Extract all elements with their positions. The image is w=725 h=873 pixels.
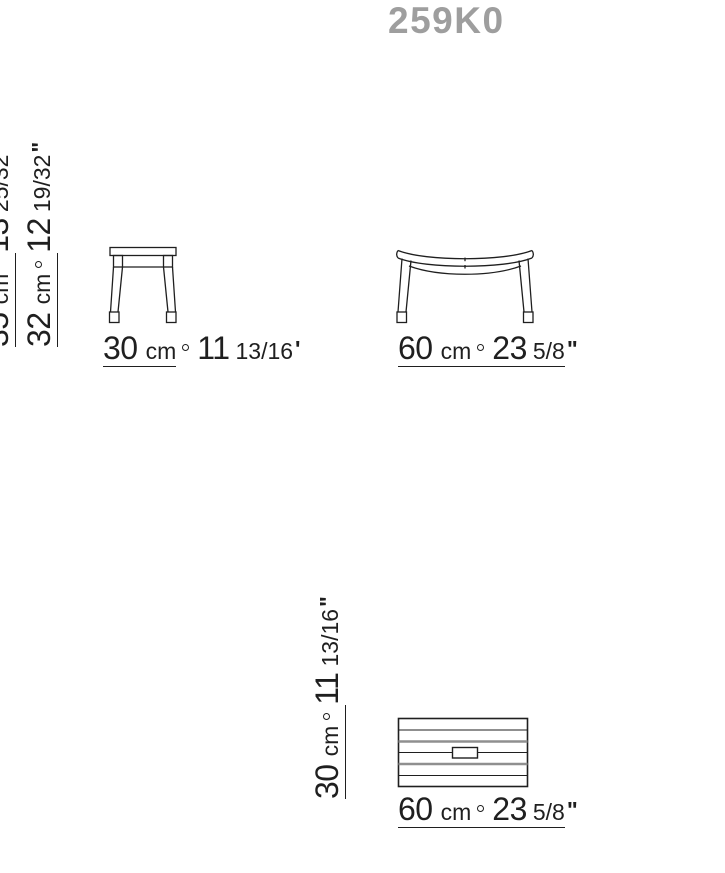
top-width-dimension-label: 60cm235/8"	[398, 791, 578, 834]
inch-value: 13	[0, 218, 15, 253]
leg-block-left	[114, 256, 123, 268]
degree-separator-icon	[35, 261, 42, 268]
degree-separator-icon	[477, 344, 484, 351]
cm-value: 30	[309, 764, 345, 799]
total-height-dimension-label: 35cm1325/32"	[0, 142, 22, 347]
inch-mark: "	[567, 336, 578, 362]
inch-mark: '	[295, 336, 300, 362]
inch-value: 12	[21, 218, 57, 253]
stool-side-view-drawing	[106, 244, 180, 324]
cm-unit: cm	[441, 799, 472, 825]
inch-mark: "	[0, 142, 11, 153]
cm-unit: cm	[441, 338, 472, 364]
degree-separator-icon	[477, 805, 484, 812]
inch-fraction: 25/32	[0, 155, 13, 213]
inch-mark: "	[27, 142, 53, 153]
leg-right	[164, 267, 176, 312]
degree-separator-icon	[323, 713, 330, 720]
inch-fraction: 13/16	[235, 338, 293, 364]
cm-value: 30	[103, 330, 138, 366]
inch-value: 11	[197, 330, 229, 366]
leg-left	[111, 267, 123, 312]
degree-separator-icon	[182, 344, 189, 351]
inch-value: 23	[492, 791, 527, 827]
handle	[453, 748, 478, 759]
seat-end-right	[532, 251, 533, 259]
cm-unit: cm	[317, 726, 343, 757]
product-code-title: 259K0	[388, 2, 505, 40]
side-width-dimension-label: 30cm1113/16'	[103, 330, 301, 373]
seat-top-edge	[398, 251, 532, 259]
inch-value: 11	[309, 673, 345, 705]
foot-right	[524, 312, 534, 323]
foot-left	[110, 312, 120, 323]
cm-unit: cm	[146, 338, 177, 364]
foot-left	[397, 312, 407, 323]
inch-mark: "	[567, 797, 578, 823]
cm-value: 32	[21, 312, 57, 347]
stool-top-view-drawing	[397, 717, 529, 789]
inch-mark: "	[315, 596, 341, 607]
furniture-dimension-sheet: 259K0 35cm1325/32" 32cm1219/32" 30cm1113…	[0, 0, 725, 873]
seat-end-left	[397, 251, 398, 259]
inch-fraction: 19/32	[29, 155, 55, 213]
inch-fraction: 5/8	[533, 799, 565, 825]
inch-fraction: 13/16	[317, 609, 343, 667]
seat	[110, 248, 176, 256]
cm-unit: cm	[29, 274, 55, 305]
seat-height-dimension-label: 32cm1219/32"	[21, 142, 64, 347]
foot-right	[167, 312, 177, 323]
inch-fraction: 5/8	[533, 338, 565, 364]
stool-front-view-drawing	[394, 244, 536, 324]
cm-value: 35	[0, 312, 15, 347]
inch-value: 23	[492, 330, 527, 366]
cm-value: 60	[398, 791, 433, 827]
cm-unit: cm	[0, 274, 13, 305]
leg-block-right	[164, 256, 173, 268]
front-width-dimension-label: 60cm235/8"	[398, 330, 578, 373]
top-depth-dimension-label: 30cm1113/16"	[309, 596, 352, 799]
cm-value: 60	[398, 330, 433, 366]
